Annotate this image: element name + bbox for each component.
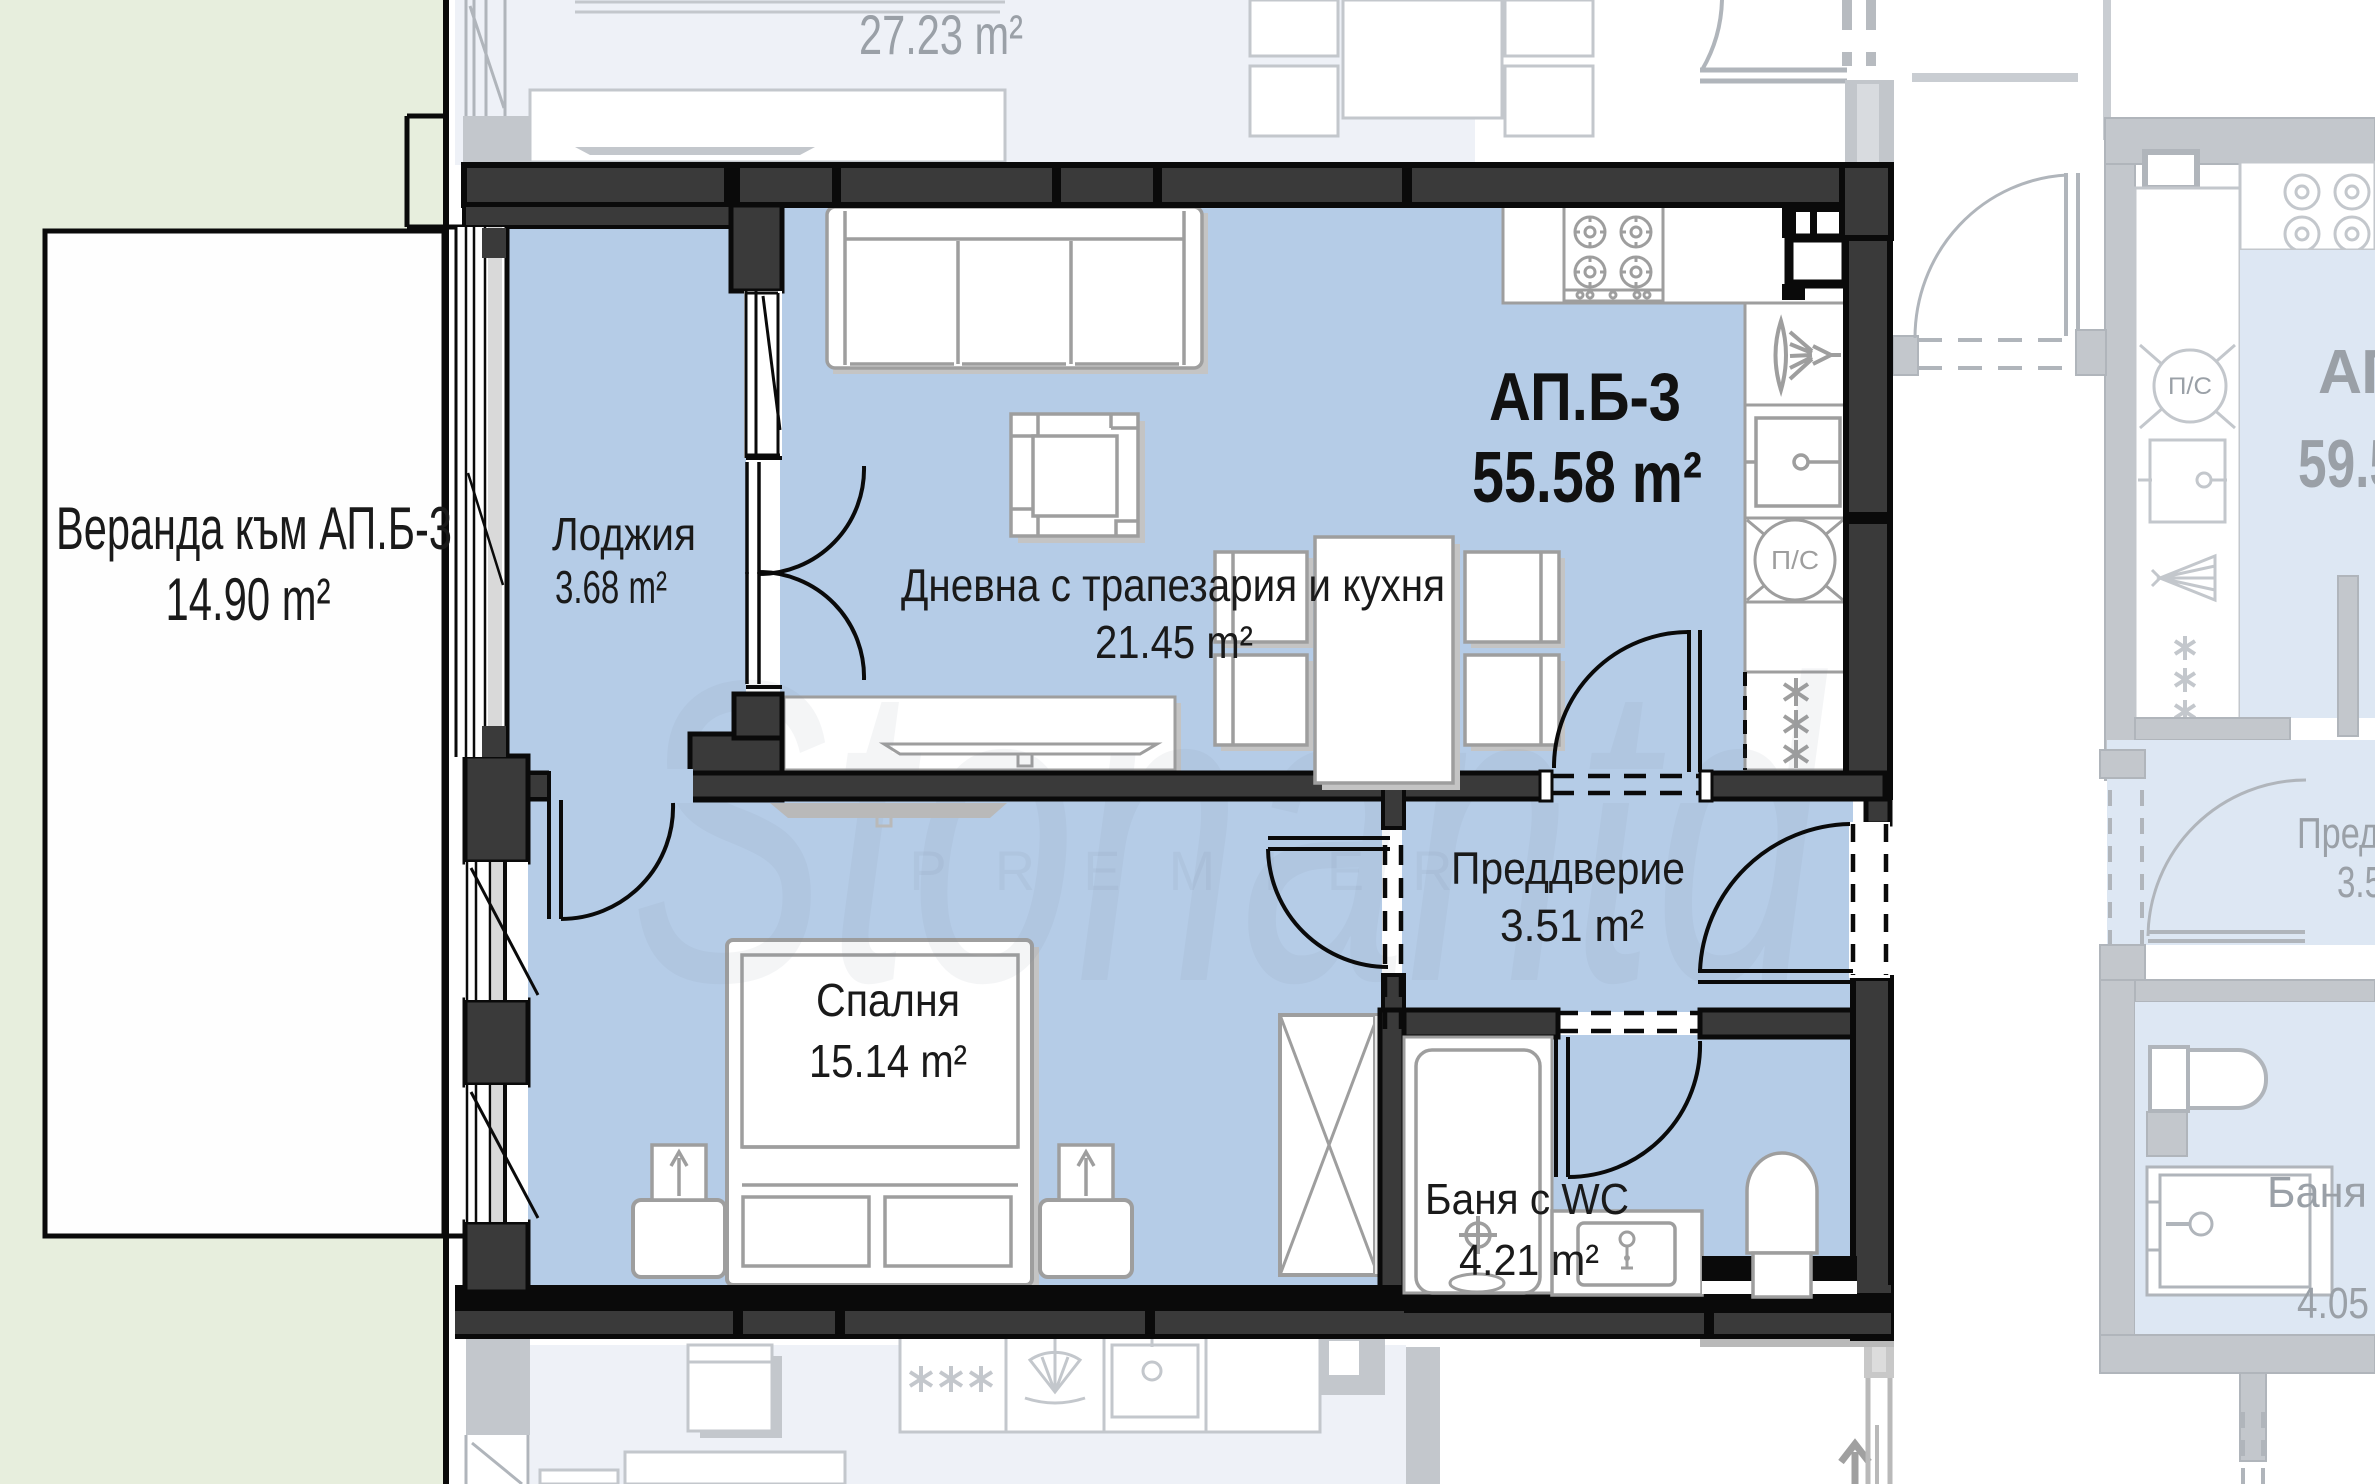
- svg-text:П/С: П/С: [2168, 373, 2212, 400]
- svg-text:3.51 m²: 3.51 m²: [1500, 900, 1644, 951]
- svg-text:PREMIER: PREMIER: [909, 839, 1500, 902]
- svg-text:15.14 m²: 15.14 m²: [809, 1035, 967, 1087]
- svg-text:Пред: Пред: [2297, 809, 2375, 858]
- svg-text:55.58 m²: 55.58 m²: [1472, 438, 1702, 518]
- svg-text:Дневна с трапезария и кухня: Дневна с трапезария и кухня: [901, 559, 1445, 611]
- svg-text:21.45 m²: 21.45 m²: [1095, 616, 1253, 668]
- svg-text:3.68 m²: 3.68 m²: [555, 561, 667, 613]
- svg-text:Преддверие: Преддверие: [1451, 843, 1685, 894]
- svg-text:4.21 m²: 4.21 m²: [1459, 1236, 1599, 1285]
- svg-text:27.23 m²: 27.23 m²: [859, 3, 1023, 66]
- svg-text:Спалня: Спалня: [816, 974, 960, 1026]
- svg-text:14.90 m²: 14.90 m²: [166, 566, 331, 633]
- svg-text:Веранда към АП.Б-3: Веранда към АП.Б-3: [56, 495, 452, 562]
- svg-text:Баня с WC: Баня с WC: [1425, 1175, 1629, 1224]
- svg-text:АП.Б-3: АП.Б-3: [1489, 359, 1681, 435]
- svg-text:П/С: П/С: [1771, 545, 1819, 575]
- svg-text:Баня: Баня: [2267, 1168, 2367, 1217]
- svg-text:4.05: 4.05: [2297, 1279, 2369, 1328]
- svg-text:3.5: 3.5: [2337, 858, 2375, 907]
- svg-text:59.5: 59.5: [2298, 426, 2375, 502]
- svg-text:АП.: АП.: [2318, 338, 2375, 407]
- svg-text:Лоджия: Лоджия: [552, 508, 696, 560]
